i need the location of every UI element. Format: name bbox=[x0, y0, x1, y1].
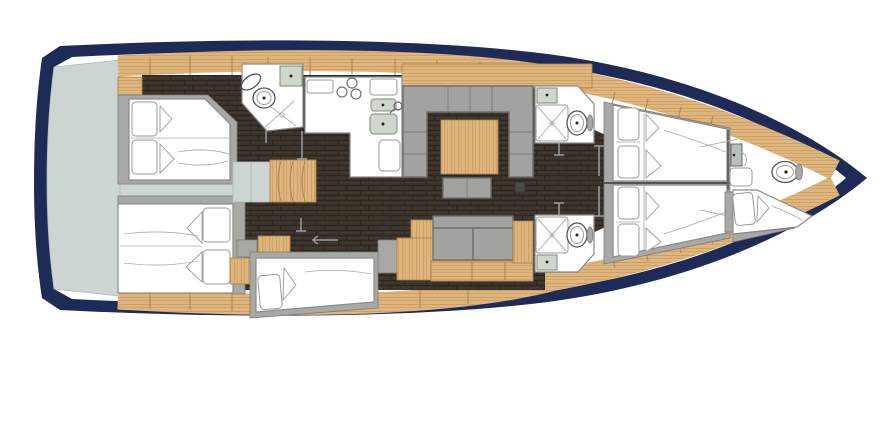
pillow bbox=[618, 108, 639, 140]
toilet-icon bbox=[772, 162, 803, 183]
sink-cover bbox=[370, 79, 397, 95]
settee-base bbox=[431, 261, 533, 281]
counter-end bbox=[379, 140, 400, 171]
settee-cushion bbox=[433, 228, 473, 260]
yacht-floorplan: Hull outline, bow pointing right Transom… bbox=[0, 0, 890, 446]
worktop-tray bbox=[307, 80, 333, 93]
cabinet bbox=[411, 220, 433, 238]
seat bbox=[730, 168, 752, 186]
bow-door bbox=[731, 144, 742, 166]
steps bbox=[270, 160, 316, 202]
toilet-icon bbox=[253, 88, 275, 108]
berth-cabinet bbox=[258, 236, 290, 254]
pillow bbox=[258, 274, 283, 310]
companionway: Companionway steps with landing bbox=[233, 160, 316, 202]
pillow bbox=[203, 208, 230, 242]
cabinet bbox=[513, 221, 533, 263]
cabinet bbox=[397, 238, 433, 280]
aft-cabin-bottom: Aft double cabin (bottom) bbox=[118, 196, 245, 294]
pillow bbox=[618, 187, 639, 219]
floor-hatch bbox=[515, 182, 525, 192]
swim-platform: Transom / stern platform bbox=[47, 60, 120, 296]
settee-back bbox=[433, 216, 513, 228]
cabinet-gray bbox=[378, 240, 397, 273]
galley-upper-lockers bbox=[402, 64, 592, 88]
salon-table bbox=[441, 120, 498, 174]
pillow bbox=[203, 250, 230, 284]
pillow bbox=[132, 140, 157, 174]
settee-cushion bbox=[473, 228, 513, 260]
pillow bbox=[618, 224, 639, 256]
pillow bbox=[618, 146, 639, 178]
pillow bbox=[132, 102, 157, 136]
pillow bbox=[732, 192, 755, 226]
